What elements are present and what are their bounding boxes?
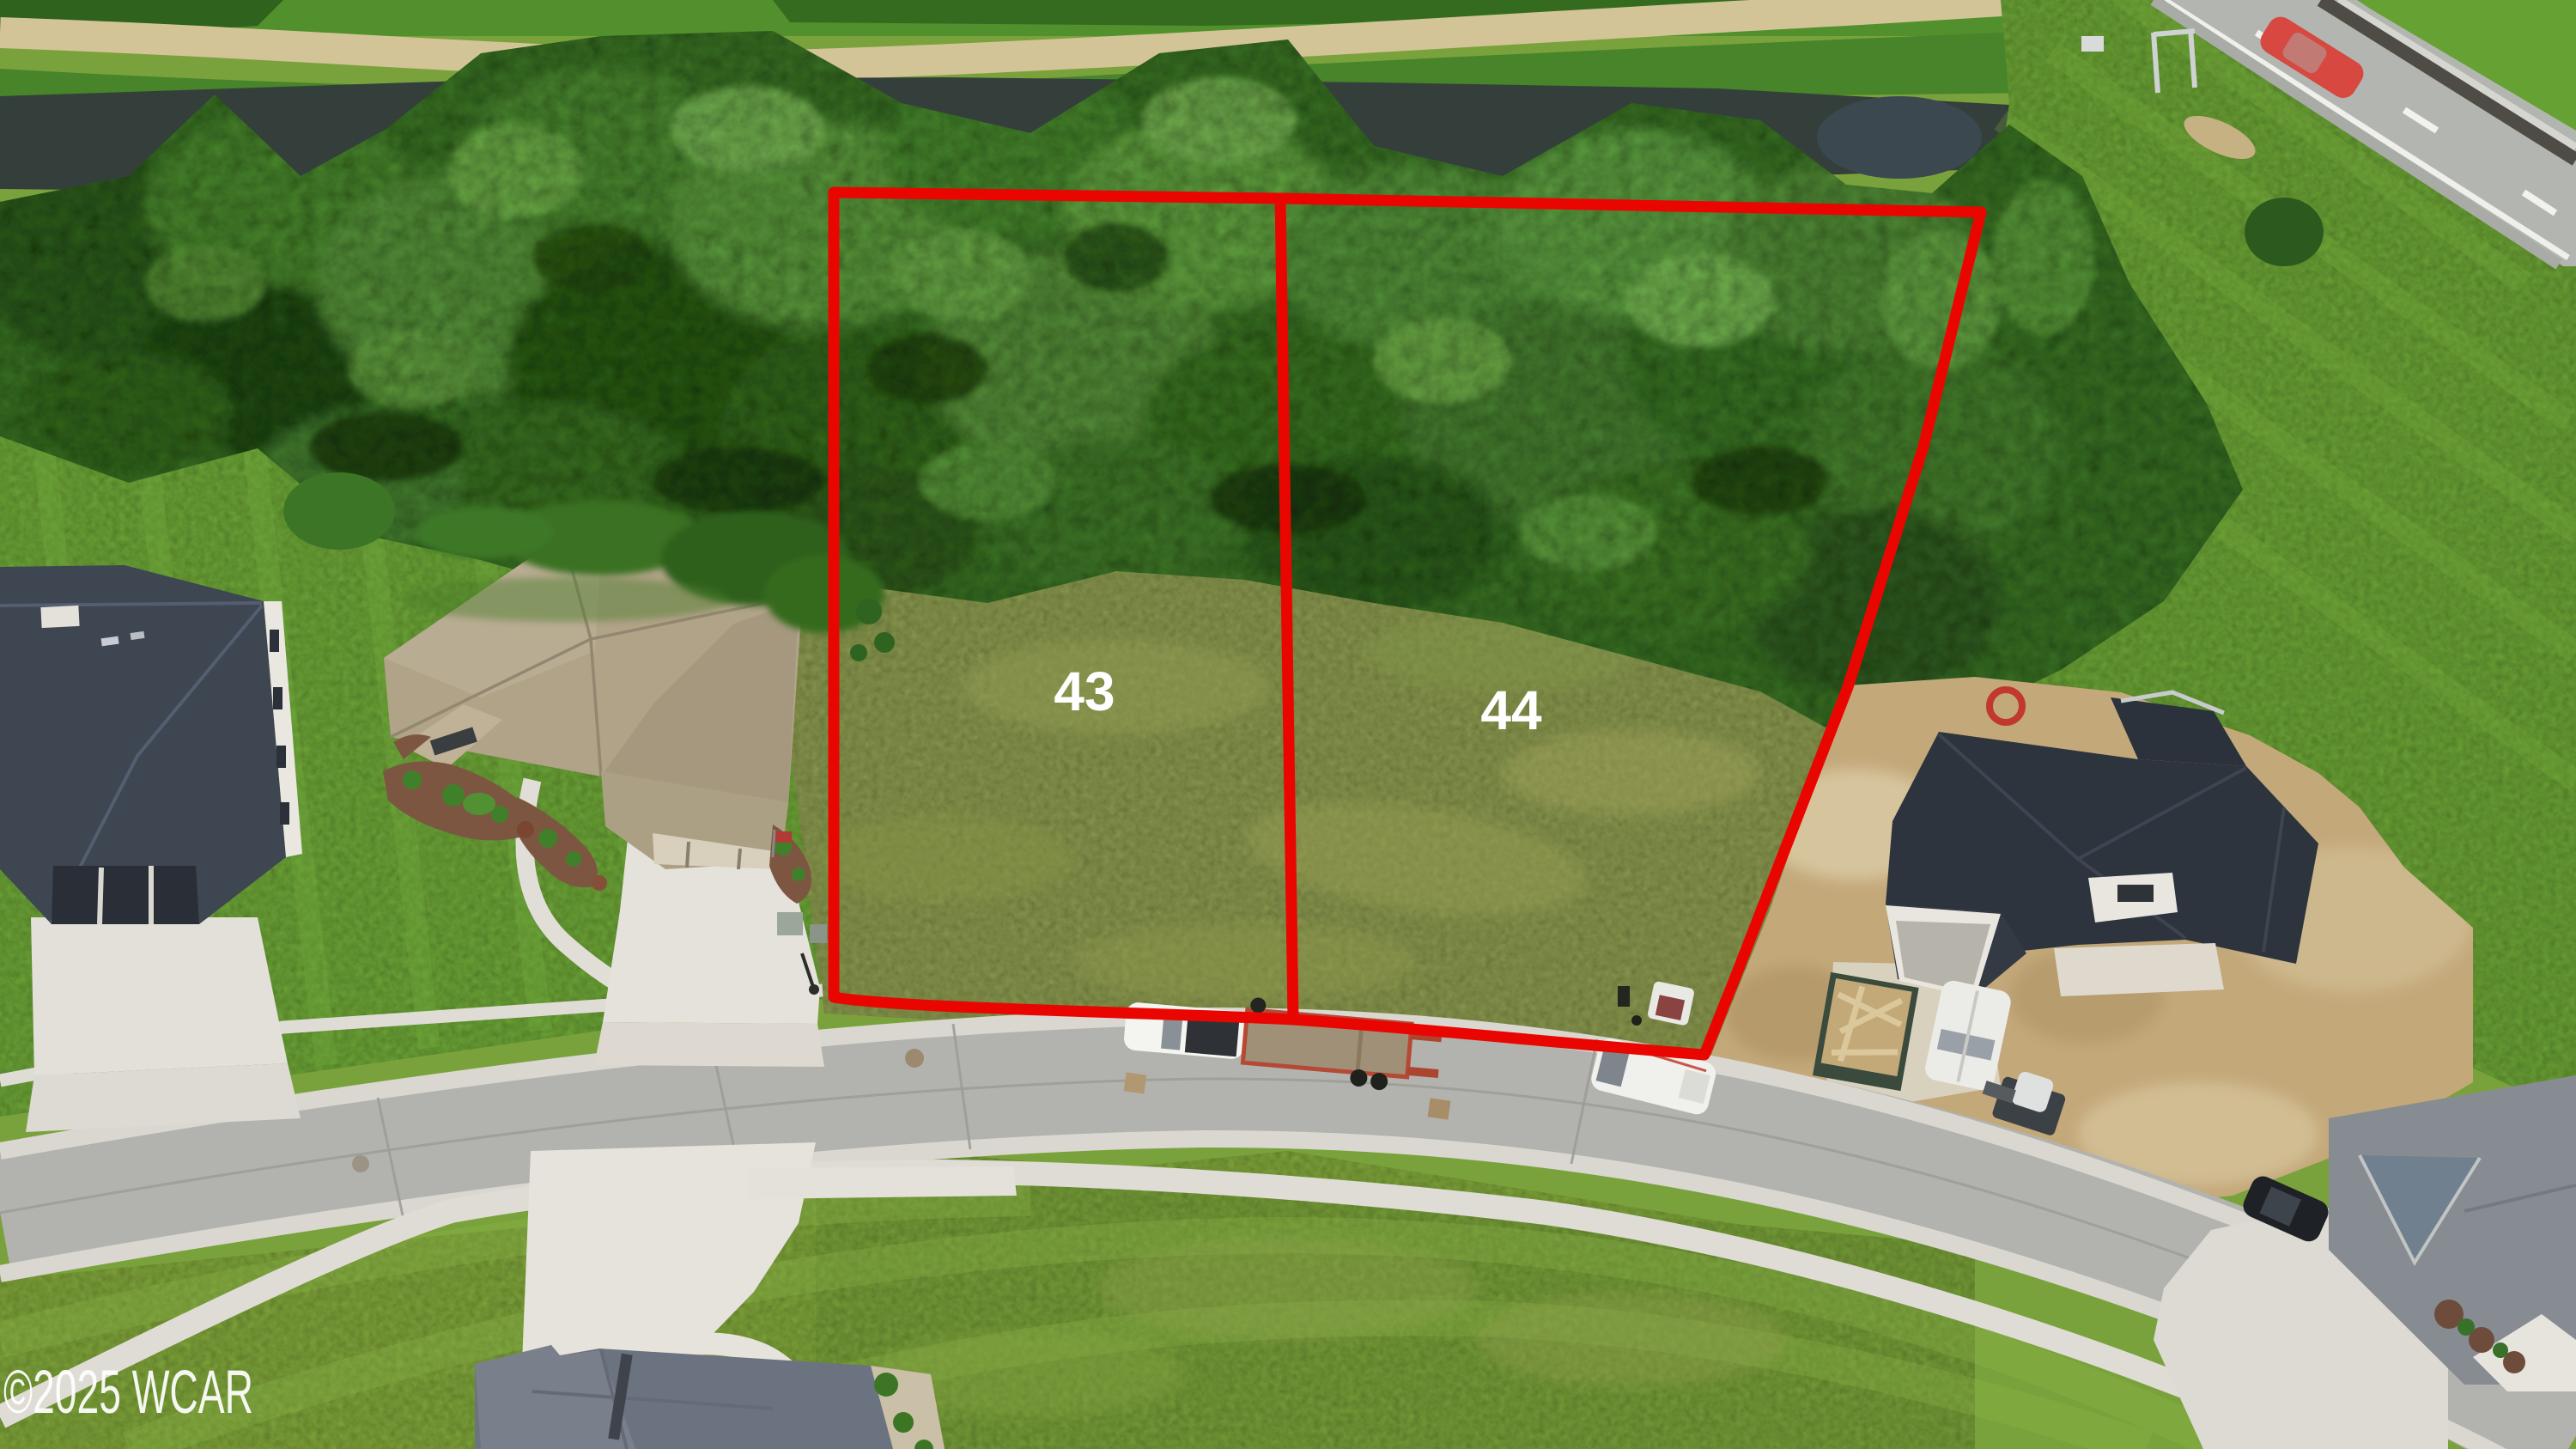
svg-text:©2025 WCAR: ©2025 WCAR (3, 1359, 253, 1427)
svg-text:44: 44 (1480, 679, 1542, 741)
svg-text:43: 43 (1054, 661, 1115, 722)
